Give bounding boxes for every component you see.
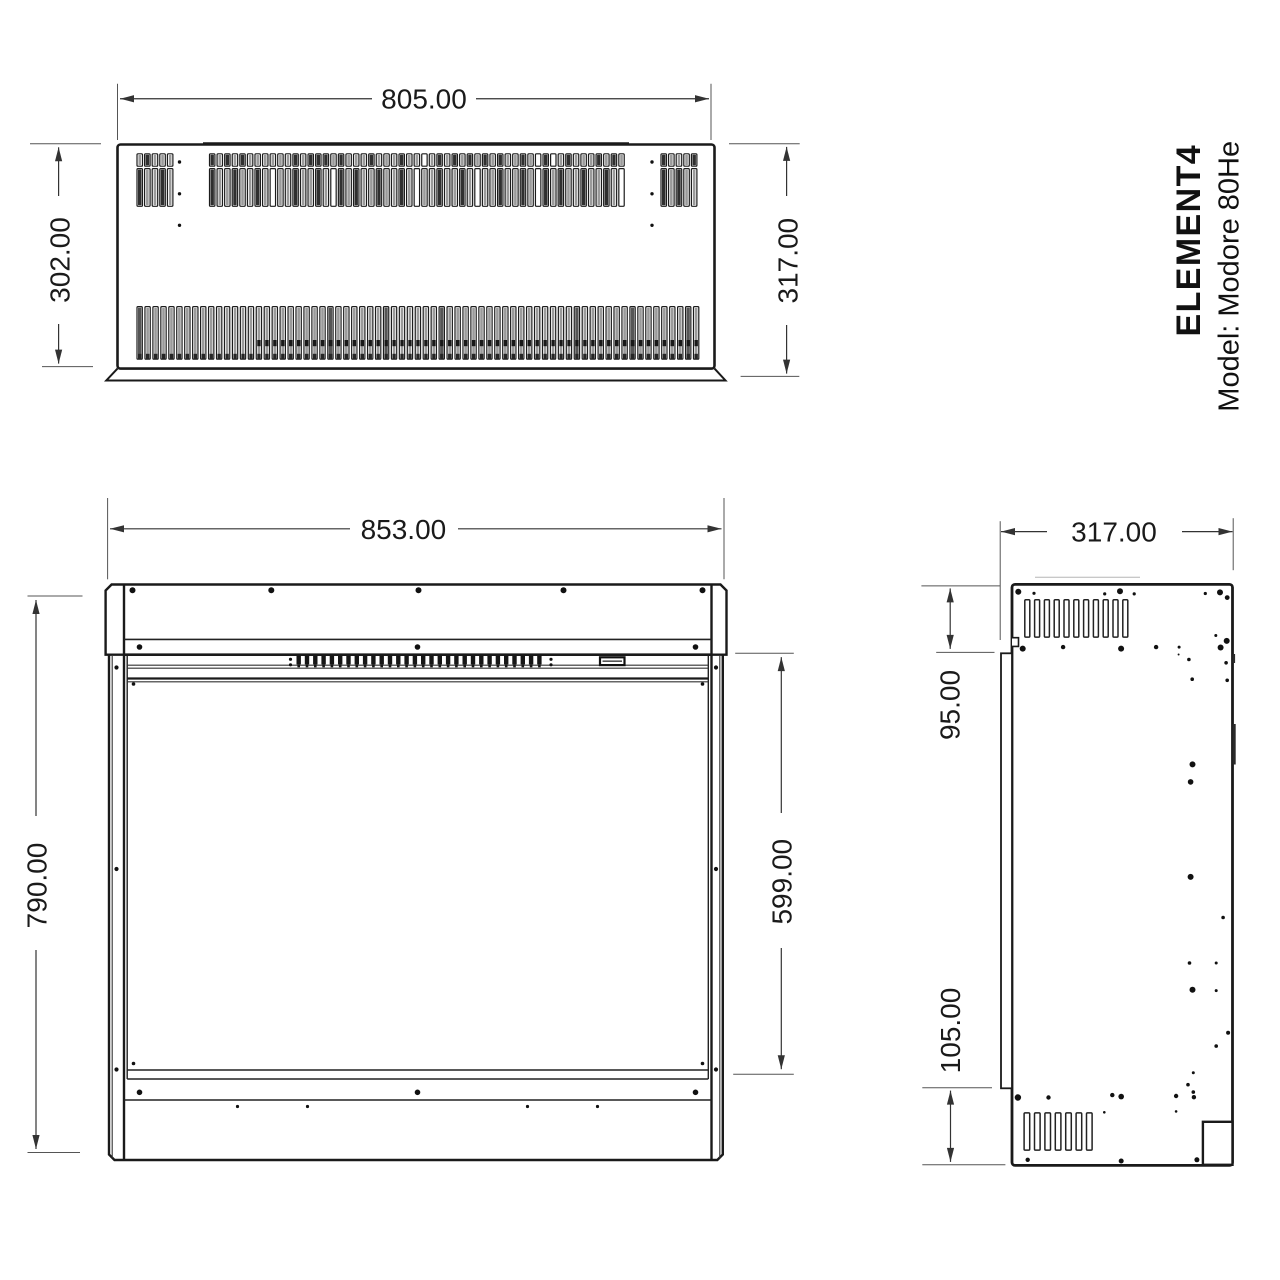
svg-text:317.00: 317.00 xyxy=(772,218,803,304)
svg-text:805.00: 805.00 xyxy=(381,84,467,115)
svg-text:95.00: 95.00 xyxy=(935,670,966,740)
svg-text:105.00: 105.00 xyxy=(935,988,966,1074)
svg-text:ELEMENT4: ELEMENT4 xyxy=(1170,144,1208,337)
svg-text:Model: Modore 80He: Model: Modore 80He xyxy=(1214,141,1246,412)
svg-text:317.00: 317.00 xyxy=(1071,517,1157,548)
svg-text:599.00: 599.00 xyxy=(767,839,798,925)
svg-text:790.00: 790.00 xyxy=(21,843,52,929)
svg-text:853.00: 853.00 xyxy=(361,514,447,545)
svg-text:302.00: 302.00 xyxy=(44,217,75,303)
